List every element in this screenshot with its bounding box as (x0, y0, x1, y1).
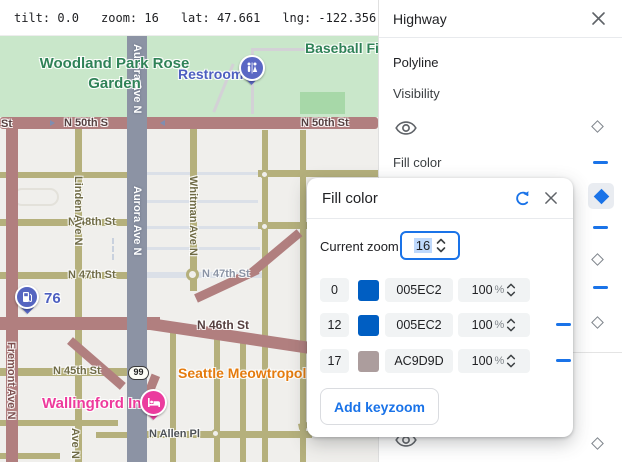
street-label: Linden Ave N (72, 176, 84, 245)
street-label: N Allen Pl (149, 428, 200, 440)
hex-color-field[interactable]: 005EC2 (385, 313, 453, 337)
dialog-title: Fill color (322, 190, 512, 207)
color-swatch[interactable] (358, 280, 379, 301)
park-label[interactable]: Woodland Park Rose Garden (32, 54, 197, 95)
street-label: N 50th St (301, 117, 349, 129)
opacity-value[interactable]: 100 (472, 354, 493, 368)
opacity-value[interactable]: 100 (472, 283, 493, 297)
park-path (251, 48, 311, 51)
roundabout (186, 268, 199, 281)
inn-pin[interactable] (140, 389, 167, 416)
stepper-chevrons-icon[interactable] (506, 353, 516, 369)
keyzoom-level-field[interactable]: 12 (320, 313, 349, 337)
highway-99-shield: 99 (128, 366, 149, 380)
keyzoom-row: 17 AC9D9D 100 % (320, 349, 530, 373)
section-polyline-label: Polyline (393, 55, 439, 70)
poi-label-cat-cafe[interactable]: Seattle Meowtropoli (178, 365, 310, 381)
street-label: N 47th St (68, 269, 116, 281)
close-icon (544, 191, 558, 205)
street-label: N 50th S (64, 117, 108, 129)
keyzoom-row: 12 005EC2 100 % (320, 313, 530, 337)
percent-sign: % (495, 355, 505, 367)
close-icon (591, 11, 606, 26)
road-v-south1 (170, 332, 176, 462)
stepper-chevrons-icon[interactable] (436, 237, 446, 254)
dialog-divider (307, 218, 573, 219)
street-label: Ave N (69, 428, 81, 459)
percent-sign: % (495, 284, 505, 296)
keyzoom-level-field[interactable]: 0 (320, 278, 349, 302)
panel-title: Highway (393, 11, 589, 27)
keyframe-diamond-icon[interactable] (591, 253, 604, 266)
lat-readout: lat: 47.661 (181, 11, 260, 25)
poi-label-inn[interactable]: Wallingford Inn (42, 395, 151, 412)
hex-color-field[interactable]: 005EC2 (385, 278, 453, 302)
keyframe-diamond-selected-icon (593, 188, 609, 204)
road-v-south3 (240, 342, 246, 462)
opacity-stepper[interactable]: 100 % (458, 313, 530, 337)
keyzoom-level-field[interactable]: 17 (320, 349, 349, 373)
parking-loop (13, 188, 59, 206)
baseball-field-area (300, 92, 345, 114)
hex-color-field[interactable]: AC9D9D (385, 349, 453, 373)
minor-road (147, 200, 258, 203)
reset-button[interactable] (512, 188, 533, 209)
remove-keyzoom-button[interactable] (556, 323, 571, 326)
keyframe-diamond-icon[interactable] (591, 120, 604, 133)
restroom-pin[interactable] (239, 55, 265, 81)
stepper-chevrons-icon[interactable] (506, 317, 516, 333)
opacity-stepper[interactable]: 100 % (458, 349, 530, 373)
app-window: tilt: 0.0 zoom: 16 lat: 47.661 lng: -122… (0, 0, 622, 462)
map-debug-statusbar: tilt: 0.0 zoom: 16 lat: 47.661 lng: -122… (0, 0, 378, 36)
keyzoom-row: 0 005EC2 100 % (320, 278, 530, 302)
road-node (211, 429, 220, 438)
oneway-arrow-icon (160, 120, 165, 126)
keyframe-selected[interactable] (588, 183, 614, 209)
road-node (260, 170, 269, 179)
road-h-east1 (258, 170, 378, 177)
keyframe-dash-icon[interactable] (593, 161, 608, 164)
street-label: St (1, 118, 12, 130)
street-label: N 47th St (202, 268, 250, 280)
fill-color-label: Fill color (393, 155, 441, 170)
current-zoom-label: Current zoom (320, 239, 399, 254)
keyframe-dash-icon[interactable] (593, 286, 608, 289)
minor-road-dashed (112, 238, 114, 260)
keyframe-diamond-icon[interactable] (591, 437, 604, 450)
oneway-arrow-icon (50, 120, 55, 126)
dialog-header: Fill color (307, 178, 573, 218)
gas-pump-icon (21, 291, 33, 303)
road-v-east1 (262, 130, 268, 462)
street-label: N 45th St (53, 365, 101, 377)
poi-label-gas[interactable]: 76 (44, 290, 61, 307)
street-label-aurora: Aurora Ave N (131, 186, 143, 255)
current-zoom-stepper[interactable]: 16 (400, 231, 460, 260)
color-swatch[interactable] (358, 351, 379, 372)
poi-label-restroom[interactable]: Restroom (178, 66, 243, 82)
dialog-close-button[interactable] (542, 189, 560, 207)
opacity-stepper[interactable]: 100 % (458, 278, 530, 302)
eye-icon (395, 120, 417, 136)
color-swatch[interactable] (358, 315, 379, 336)
zoom-readout: zoom: 16 (101, 11, 159, 25)
add-keyzoom-button[interactable]: Add keyzoom (320, 388, 439, 425)
minor-road (147, 226, 258, 229)
bed-icon (147, 397, 161, 408)
tilt-readout: tilt: 0.0 (14, 11, 79, 25)
ramp-ne-2 (249, 229, 302, 276)
opacity-value[interactable]: 100 (472, 318, 493, 332)
poi-label-baseball[interactable]: Baseball Fi (305, 40, 378, 56)
percent-sign: % (495, 319, 505, 331)
street-label: Fremont Ave N (5, 342, 17, 419)
road-v-east2 (300, 130, 306, 462)
restroom-icon (245, 62, 259, 74)
visibility-label: Visibility (393, 86, 440, 101)
road-v-south2 (214, 332, 220, 462)
street-label: Whitman Ave N (187, 176, 199, 256)
road-node (260, 222, 269, 231)
road-h-west2 (96, 432, 131, 438)
panel-header: Highway (379, 0, 622, 38)
keyframe-diamond-icon[interactable] (591, 316, 604, 329)
stepper-chevrons-icon[interactable] (506, 282, 516, 298)
current-zoom-value[interactable]: 16 (414, 238, 432, 253)
minor-road (147, 172, 260, 175)
street-label: N 46th St (197, 318, 249, 332)
minor-road (147, 247, 260, 250)
remove-keyzoom-button[interactable] (556, 359, 571, 362)
gas-pin[interactable] (15, 285, 39, 309)
lng-readout: lng: -122.356 (282, 11, 376, 25)
reset-icon (514, 190, 531, 207)
keyframe-dash-icon[interactable] (593, 226, 608, 229)
visibility-toggle[interactable] (393, 118, 419, 138)
panel-close-button[interactable] (589, 9, 608, 28)
fill-color-dialog: Fill color Current zoom 16 (307, 178, 573, 437)
road-unnamed-h (0, 172, 127, 178)
